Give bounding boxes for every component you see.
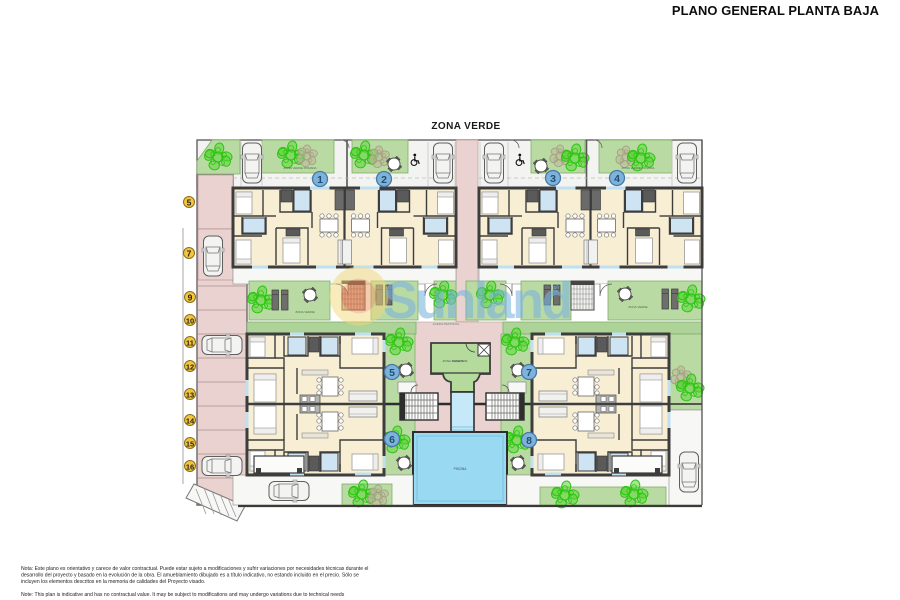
svg-text:PISCINA: PISCINA [454,467,468,471]
svg-text:16: 16 [186,462,194,471]
svg-text:7: 7 [187,248,192,258]
svg-text:ZONA VERDE PRIVADA: ZONA VERDE PRIVADA [621,166,654,170]
svg-text:1: 1 [317,174,323,186]
svg-text:2: 2 [381,174,387,186]
svg-text:5: 5 [389,367,395,379]
svg-text:6: 6 [389,434,395,446]
svg-text:3: 3 [550,173,556,185]
svg-text:PLANO GENERAL PLANTA BAJA: PLANO GENERAL PLANTA BAJA [672,3,879,18]
svg-text:Note: This plan is indicative: Note: This plan is indicative and has no… [21,592,345,598]
svg-text:Nota: Este plano es orientativ: Nota: Este plano es orientativo y carece… [21,566,368,572]
svg-text:ZONA VERDE: ZONA VERDE [295,310,314,314]
svg-text:13: 13 [186,390,194,399]
svg-text:7: 7 [526,367,532,379]
svg-text:ZONA VERDE: ZONA VERDE [431,121,500,132]
svg-text:®: ® [551,283,559,295]
svg-text:incluyen los elementos descrit: incluyen los elementos descritos en la m… [21,579,205,585]
svg-text:Sunland: Sunland [383,272,571,330]
svg-text:11: 11 [186,338,194,347]
svg-text:14: 14 [186,416,195,425]
svg-text:ZONA VERDE: ZONA VERDE [628,305,647,309]
svg-text:desarrollo del proyecto y basa: desarrollo del proyecto y basado en la e… [21,573,359,579]
svg-text:ZONA VERDE PRIVADA: ZONA VERDE PRIVADA [283,166,316,170]
svg-text:5: 5 [187,197,192,207]
svg-text:10: 10 [186,316,194,325]
svg-text:15: 15 [186,439,194,448]
svg-text:4: 4 [614,173,620,185]
svg-text:12: 12 [186,362,194,371]
svg-text:9: 9 [188,292,193,302]
svg-text:ACERA PEATONAL: ACERA PEATONAL [433,322,460,326]
svg-text:8: 8 [526,435,532,447]
svg-text:ZONA SOLARIUM: ZONA SOLARIUM [443,359,468,363]
